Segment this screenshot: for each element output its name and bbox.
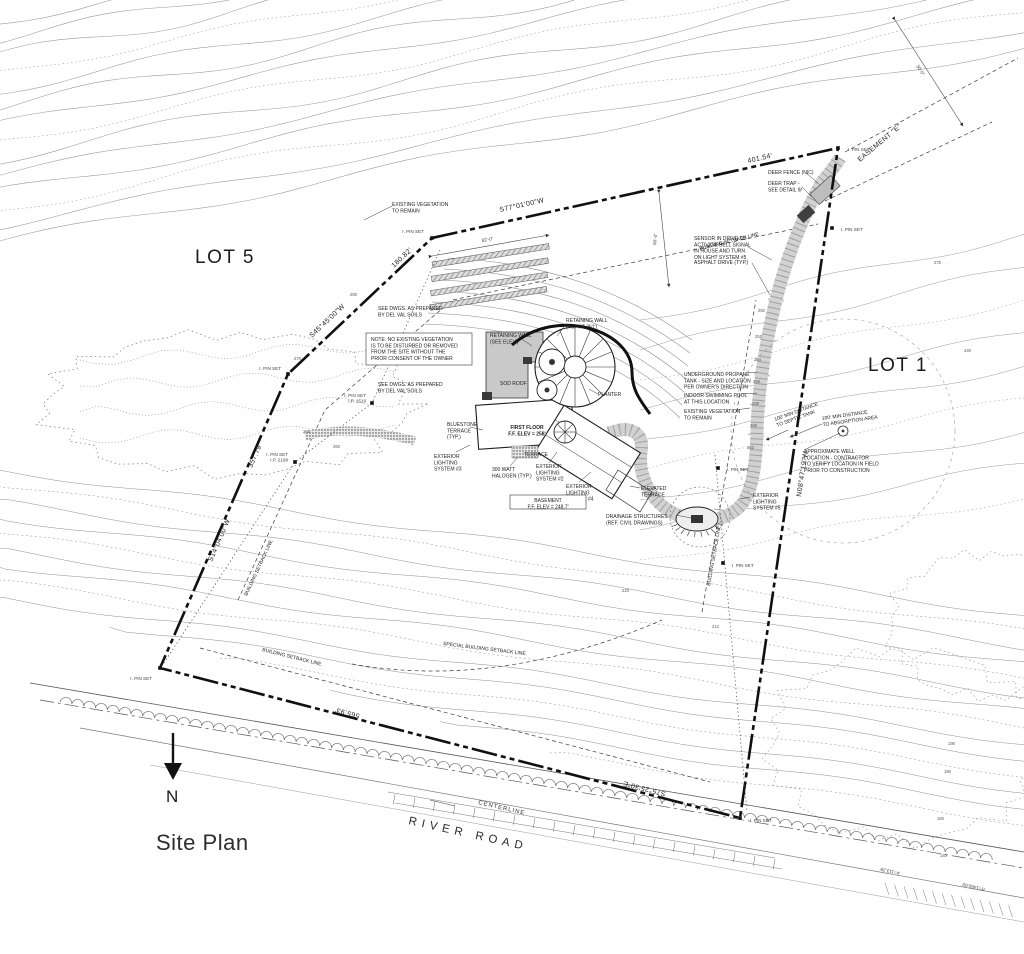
- pin-label: I. PIN SET: [732, 563, 754, 568]
- river-road-group: [30, 683, 1024, 922]
- bluestone-vegetation-band: [305, 431, 415, 441]
- pin-marker: [158, 666, 162, 670]
- drainage-inlet: [691, 515, 703, 523]
- well-center-dot: [842, 430, 845, 433]
- leader-line: [752, 263, 770, 295]
- pin-label: I. PIN SET: [848, 147, 870, 152]
- contour-elevation-label: 250: [758, 308, 766, 313]
- contour-elevation-label: 254: [754, 357, 762, 362]
- garden-dim-label: 82'-0": [481, 236, 494, 243]
- slope-hatch-tick: [990, 902, 994, 914]
- contour-line: [0, 29, 1024, 231]
- contour-line: [0, 596, 1024, 746]
- vegetation-note-label: NOTE: NO EXISTING VEGETATIONIS TO BE DIS…: [371, 337, 458, 362]
- bearing-upper-left: S45°45'00"W: [308, 302, 347, 339]
- contour-elevation-label: 240: [964, 348, 972, 353]
- contour-elevation-label: 280: [350, 292, 358, 297]
- vegetation-cloud: [762, 646, 1024, 848]
- setback-dim-label: 60'-0": [652, 233, 658, 246]
- contour-elevation-label: 256: [753, 379, 761, 384]
- leader-line: [748, 247, 772, 260]
- planter-label: PLANTER: [598, 392, 621, 398]
- pin-marker: [721, 561, 725, 565]
- pin-marker: [370, 401, 374, 405]
- contour-elevation-label: 275: [934, 260, 942, 265]
- bearing-bottom: S75°25'30"E: [622, 779, 666, 798]
- special-setback-line: [352, 620, 662, 671]
- slope-hatch-tick: [923, 890, 927, 902]
- pin-label: I. PIN SET: [402, 229, 424, 234]
- contour-line: [440, 722, 1024, 812]
- drainage-tick: [695, 532, 696, 537]
- contour-line: [0, 532, 1024, 682]
- existing-vegetation-top-label: EXISTING VEGETATIONTO REMAIN: [392, 202, 449, 214]
- slope-hatch-tick: [904, 886, 908, 898]
- garden-beds: [423, 244, 556, 311]
- pin-label: I. PIN SETI.P. 2199: [266, 452, 288, 463]
- contour-line: [0, 548, 1024, 700]
- setback-dim-line: [659, 193, 669, 287]
- contour-line: [0, 0, 1024, 60]
- leader-line: [456, 445, 470, 452]
- drainage-label: DRAINAGE STRUCTURES(REF. CIVIL DRAWINGS): [606, 514, 668, 526]
- absorption-distance-label: 100' MIN DISTANCETO ABSORPTION AREA: [821, 408, 878, 428]
- special-setback-label: SPECIAL BUILDING SETBACK LINE: [443, 641, 527, 657]
- pin-label: I. PIN SETI.P. 1519: [344, 393, 366, 404]
- drainage-tick: [672, 524, 677, 526]
- drainage-tick: [706, 531, 709, 536]
- building-setback-bottom-label: BUILDING SETBACK LINE: [262, 647, 323, 668]
- elevated-terrace-label: ELEVATEDTERRACE: [641, 486, 667, 498]
- setback-line-bottom: [200, 648, 710, 782]
- pin-label: I. PIN SET: [259, 366, 281, 371]
- lot1-label: LOT 1: [868, 355, 928, 376]
- slope-hatch-tick: [971, 898, 975, 910]
- slope-hatch-tick: [1009, 905, 1013, 917]
- propane-label: UNDERGROUND PROPANETANK - SIZE AND LOCAT…: [684, 372, 751, 391]
- building-setback-lines: [200, 224, 818, 782]
- contour-line: [640, 265, 1024, 350]
- contour-line: [110, 627, 1024, 763]
- pin-marker: [286, 372, 290, 376]
- pin-label: I. PIN SET: [130, 676, 152, 681]
- round-room-hub: [564, 356, 586, 378]
- site-plan-page: EASEMENT "E" 30'-0": [0, 0, 1024, 954]
- easement-label: EASEMENT "E": [857, 123, 904, 164]
- drainage-tick: [681, 530, 684, 534]
- deer-trap-label: DEER TRAP -SEE DETAIL 9/: [768, 181, 803, 193]
- drainage-tick: [687, 531, 689, 536]
- pin-marker: [716, 466, 720, 470]
- retaining-wall-right-label: RETAINING WALL(TOP AT 261'): [566, 318, 608, 330]
- pin-marker: [830, 226, 834, 230]
- pin-marker: [738, 816, 742, 820]
- round-element-center: [549, 359, 555, 365]
- contour-line: [0, 580, 1024, 732]
- building-setback-left-label: BUILDING SETBACK LINE: [243, 539, 274, 597]
- contour-line: [550, 753, 1024, 828]
- absorption-arrow: [790, 424, 822, 437]
- bearing-top: S77°01'00"W: [499, 196, 545, 214]
- existing-vegetation-right-label: EXISTING VEGETATIONTO REMAIN: [684, 409, 741, 421]
- contour-elevation-label: 252: [755, 334, 763, 339]
- contour-line: [0, 468, 1024, 617]
- contour-line: [80, 341, 395, 365]
- pin-marker: [293, 460, 297, 464]
- site-plan-drawing: EASEMENT "E" 30'-0": [0, 0, 1024, 954]
- contour-elevation-label: 262: [747, 445, 755, 450]
- north-label: N: [166, 787, 178, 806]
- delval-b-label: SEE DWGS. AS PREPAREDBY DEL VAL SOILS: [378, 382, 443, 394]
- bearing-left: S14°04'00"W: [206, 518, 232, 563]
- easement-group: EASEMENT "E" 30'-0": [806, 20, 1018, 210]
- lot5-label: LOT 5: [195, 247, 255, 268]
- terrace-label: TERRACE: [524, 452, 549, 458]
- leader-line: [510, 458, 517, 466]
- ext-lighting-5-label: EXTERIORLIGHTINGSYSTEM #5: [753, 493, 781, 512]
- halogen-label: 300 WATTHALOGEN (TYP.): [492, 467, 532, 479]
- contour-line: [0, 0, 1024, 165]
- pin-marker: [836, 146, 840, 150]
- pin-label: I. PIN SET: [750, 818, 772, 823]
- curve-radius-label: R=1460.00': [961, 882, 985, 892]
- easement-dim-line: [895, 20, 963, 126]
- bluestone-terrace-label: BLUESTONETERRACE(TYP.): [447, 422, 478, 441]
- river-road-label: RIVER ROAD: [407, 815, 528, 853]
- round-planter-spokes: [555, 422, 576, 443]
- planter-box: [482, 392, 492, 400]
- road-post-tick: [393, 794, 395, 804]
- length-left: 357.79': [247, 443, 264, 469]
- road-shoulder-line: [150, 765, 1024, 922]
- septic-arrow: [766, 430, 788, 440]
- first-floor-label: FIRST FLOORF.F. ELEV = 258': [508, 425, 545, 437]
- slope-hatch-tick: [895, 885, 899, 897]
- contour-line: [0, 0, 1024, 128]
- contour-elevation-label: 258: [752, 401, 760, 406]
- contour-elevation-label: 265: [303, 429, 311, 434]
- contour-line: [0, 0, 1024, 44]
- contour-elevation-label: 260: [750, 423, 758, 428]
- contour-line: [0, 0, 1024, 26]
- slope-hatch-tick: [942, 893, 946, 905]
- contour-elevation-label: 260: [333, 444, 341, 449]
- round-element-center: [545, 388, 550, 393]
- vegetation-cloud: [885, 550, 1024, 702]
- drainage-tick: [676, 527, 681, 530]
- contour-elevation-label: 180: [944, 769, 952, 774]
- contour-elevation-label: 212: [712, 624, 720, 629]
- drawing-title: Site Plan: [156, 830, 249, 855]
- contour-line: [0, 516, 1024, 664]
- ext-lighting-2-label: EXTERIORLIGHTINGSYSTEM #2: [536, 464, 564, 483]
- slope-hatch-tick: [933, 891, 937, 903]
- leader-line: [804, 433, 840, 450]
- north-arrow-head: [164, 763, 182, 780]
- contour-elevation-label: 270: [294, 356, 302, 361]
- contour-elevation-label: 190: [948, 741, 956, 746]
- contour-line: [330, 690, 1024, 795]
- contour-line: [0, 564, 1024, 711]
- contour-line: [0, 0, 1024, 196]
- contour-elevation-label: 160: [937, 816, 945, 821]
- contour-line: [0, 499, 1024, 653]
- contour-line: [640, 294, 1024, 380]
- leader-line: [630, 486, 640, 488]
- slope-hatch-tick: [961, 897, 965, 909]
- building-setback-right-label: BUILDING SETBACK LINE: [706, 525, 723, 587]
- contour-line: [0, 11, 1024, 213]
- deer-fence-label: DEER FENCE (NIC): [768, 170, 814, 176]
- slope-hatch-tick: [980, 900, 984, 912]
- pin-label: I. PIN SET: [727, 467, 749, 472]
- drainage-tick: [701, 532, 702, 537]
- pin-marker: [430, 236, 434, 240]
- slope-hatch-tick: [914, 888, 918, 900]
- slope-hatch-tick: [952, 895, 956, 907]
- curve-arc-label: A=113.29': [879, 866, 900, 875]
- contour-line: [0, 0, 1024, 77]
- pin-label: I. PIN SET: [841, 227, 863, 232]
- contour-elevation-label: 220: [622, 588, 630, 593]
- slope-hatch-tick: [999, 903, 1003, 915]
- leader-line: [364, 206, 392, 220]
- contour-line: [80, 368, 395, 387]
- length-bottom: 565.93': [334, 706, 360, 719]
- sod-roof-label: SOD ROOF: [500, 381, 527, 387]
- slope-hatch-tick: [885, 883, 889, 895]
- easement-line-1: [845, 58, 1018, 152]
- asphalt-drive-label: ASPHALT DRIVE (TYP.): [694, 260, 749, 266]
- well-note-label: APPROXIMATE WELLLOCATION - CONTRACTORTO …: [804, 449, 879, 474]
- drainage-tick: [711, 529, 715, 533]
- ext-lighting-3-label: EXTERIORLIGHTINGSYSTEM #3: [434, 454, 462, 473]
- contour-elevation-label: 140: [940, 853, 948, 858]
- planter-box: [523, 357, 532, 364]
